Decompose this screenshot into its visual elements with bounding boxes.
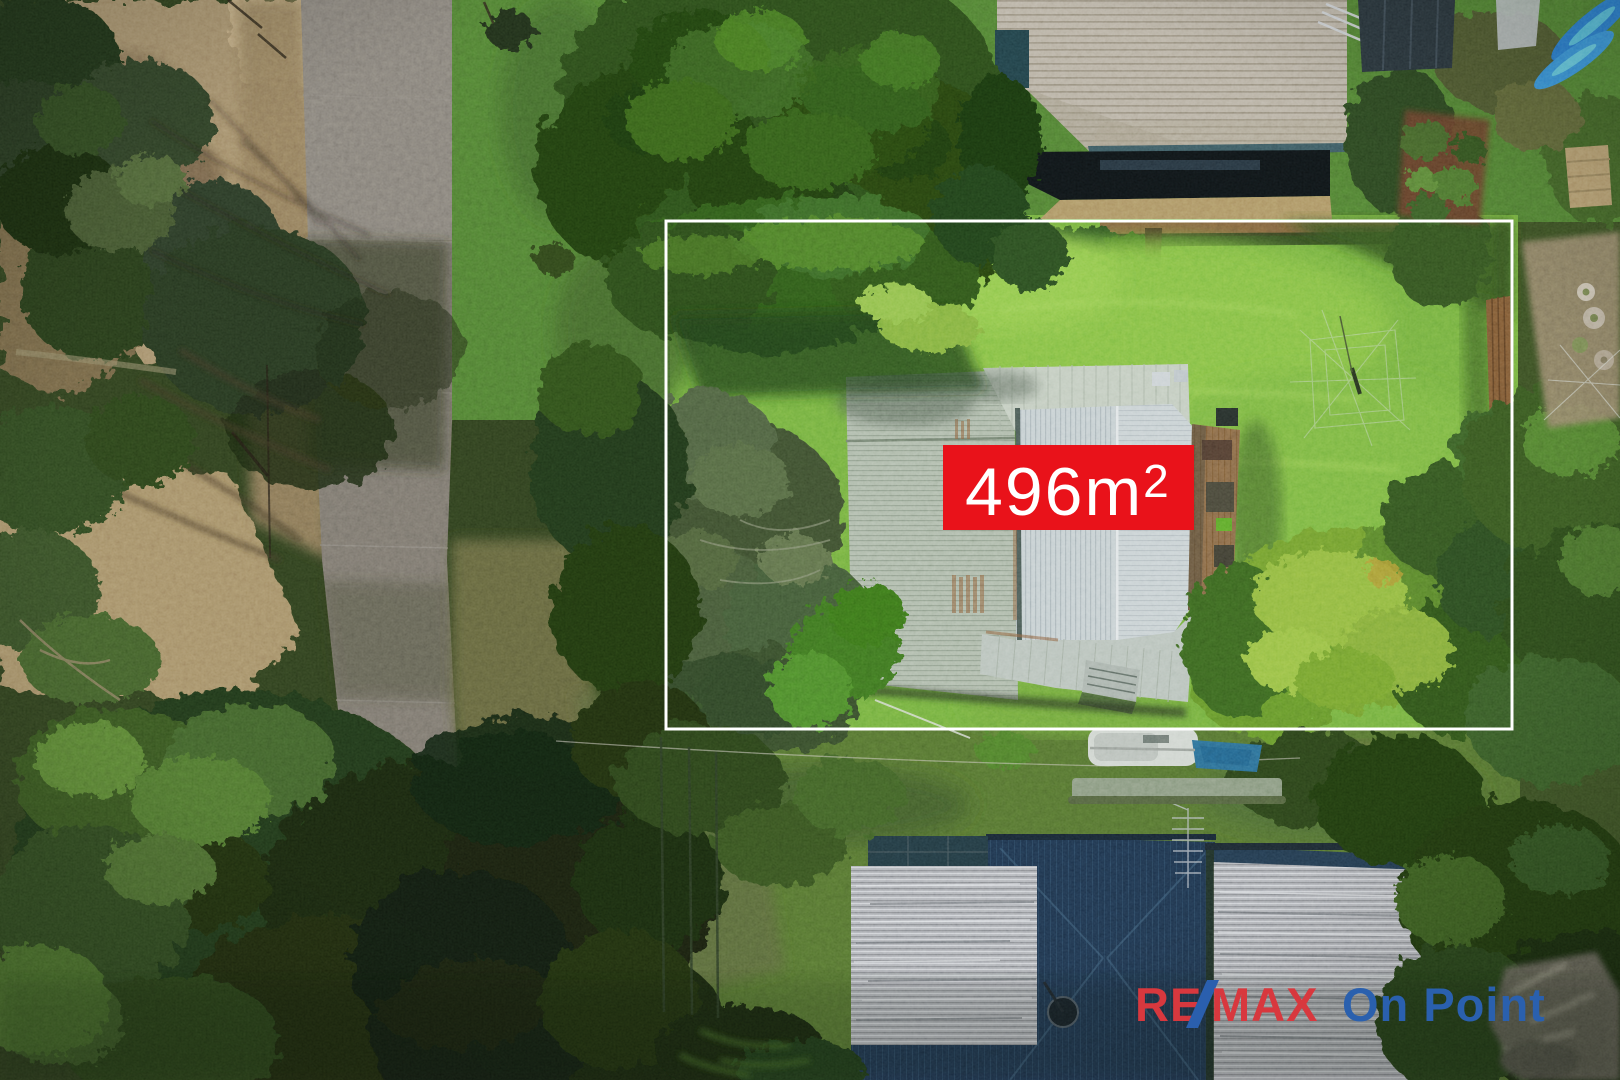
svg-text:On Point: On Point [1342, 978, 1546, 1031]
svg-text:MAX: MAX [1211, 978, 1318, 1031]
svg-text:496m2: 496m2 [965, 454, 1171, 530]
